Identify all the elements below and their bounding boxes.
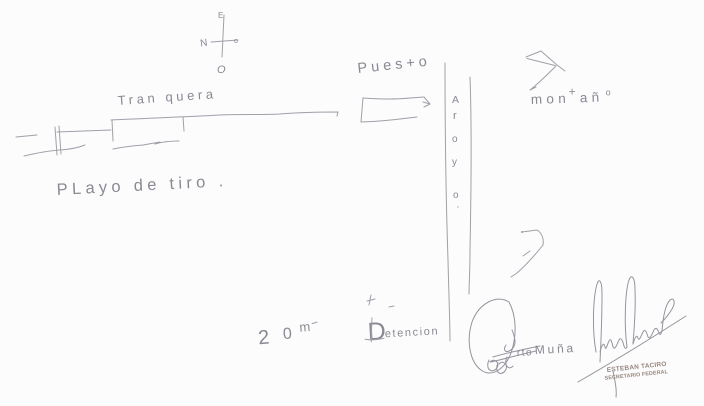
- svg-text:m: m: [299, 319, 311, 335]
- svg-text:N: N: [199, 38, 208, 50]
- svg-text:D: D: [367, 317, 387, 346]
- svg-text:o: o: [605, 87, 610, 97]
- svg-text:rto: rto: [517, 347, 534, 359]
- svg-text:E: E: [218, 11, 223, 20]
- svg-text:+: +: [568, 84, 576, 98]
- svg-text:r: r: [453, 110, 457, 122]
- svg-text:o: o: [453, 190, 459, 201]
- svg-text:o: o: [452, 134, 458, 145]
- svg-text:Muña: Muña: [534, 341, 576, 357]
- svg-text:A: A: [452, 94, 459, 106]
- svg-text:y: y: [452, 157, 457, 168]
- svg-text:añ: añ: [580, 90, 604, 106]
- svg-text:o: o: [234, 38, 238, 45]
- svg-text:2: 2: [257, 326, 270, 349]
- svg-text:mon: mon: [531, 91, 571, 107]
- svg-text:0: 0: [282, 325, 292, 343]
- svg-text:O: O: [217, 64, 226, 76]
